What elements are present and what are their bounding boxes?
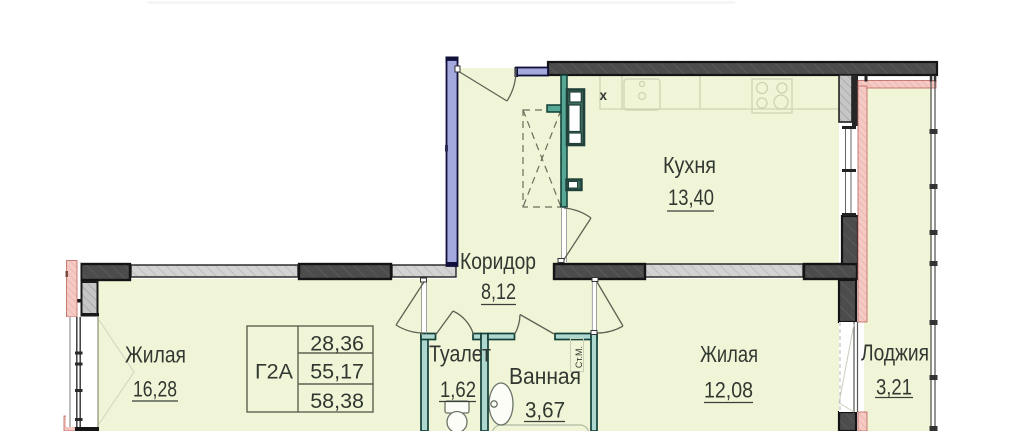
svg-text:1,62: 1,62 bbox=[440, 377, 476, 402]
svg-text:Ванная: Ванная bbox=[509, 363, 581, 389]
svg-text:3,21: 3,21 bbox=[876, 375, 912, 400]
svg-text:3,67: 3,67 bbox=[525, 398, 565, 423]
svg-text:28,36: 28,36 bbox=[310, 332, 364, 356]
svg-text:x: x bbox=[600, 88, 608, 103]
svg-text:Жилая: Жилая bbox=[125, 342, 186, 368]
svg-text:Г2А: Г2А bbox=[255, 360, 294, 384]
svg-text:Лоджия: Лоджия bbox=[861, 340, 929, 366]
svg-text:12,08: 12,08 bbox=[704, 378, 753, 403]
svg-text:13,40: 13,40 bbox=[668, 185, 714, 210]
svg-text:16,28: 16,28 bbox=[133, 377, 177, 402]
svg-text:Жилая: Жилая bbox=[700, 341, 758, 367]
svg-text:58,38: 58,38 bbox=[310, 389, 364, 413]
svg-text:8,12: 8,12 bbox=[481, 279, 516, 304]
svg-text:Кухня: Кухня bbox=[663, 152, 716, 178]
svg-text:Коридор: Коридор bbox=[460, 248, 536, 274]
svg-text:55,17: 55,17 bbox=[310, 360, 364, 384]
svg-text:Туалет: Туалет bbox=[429, 341, 491, 367]
